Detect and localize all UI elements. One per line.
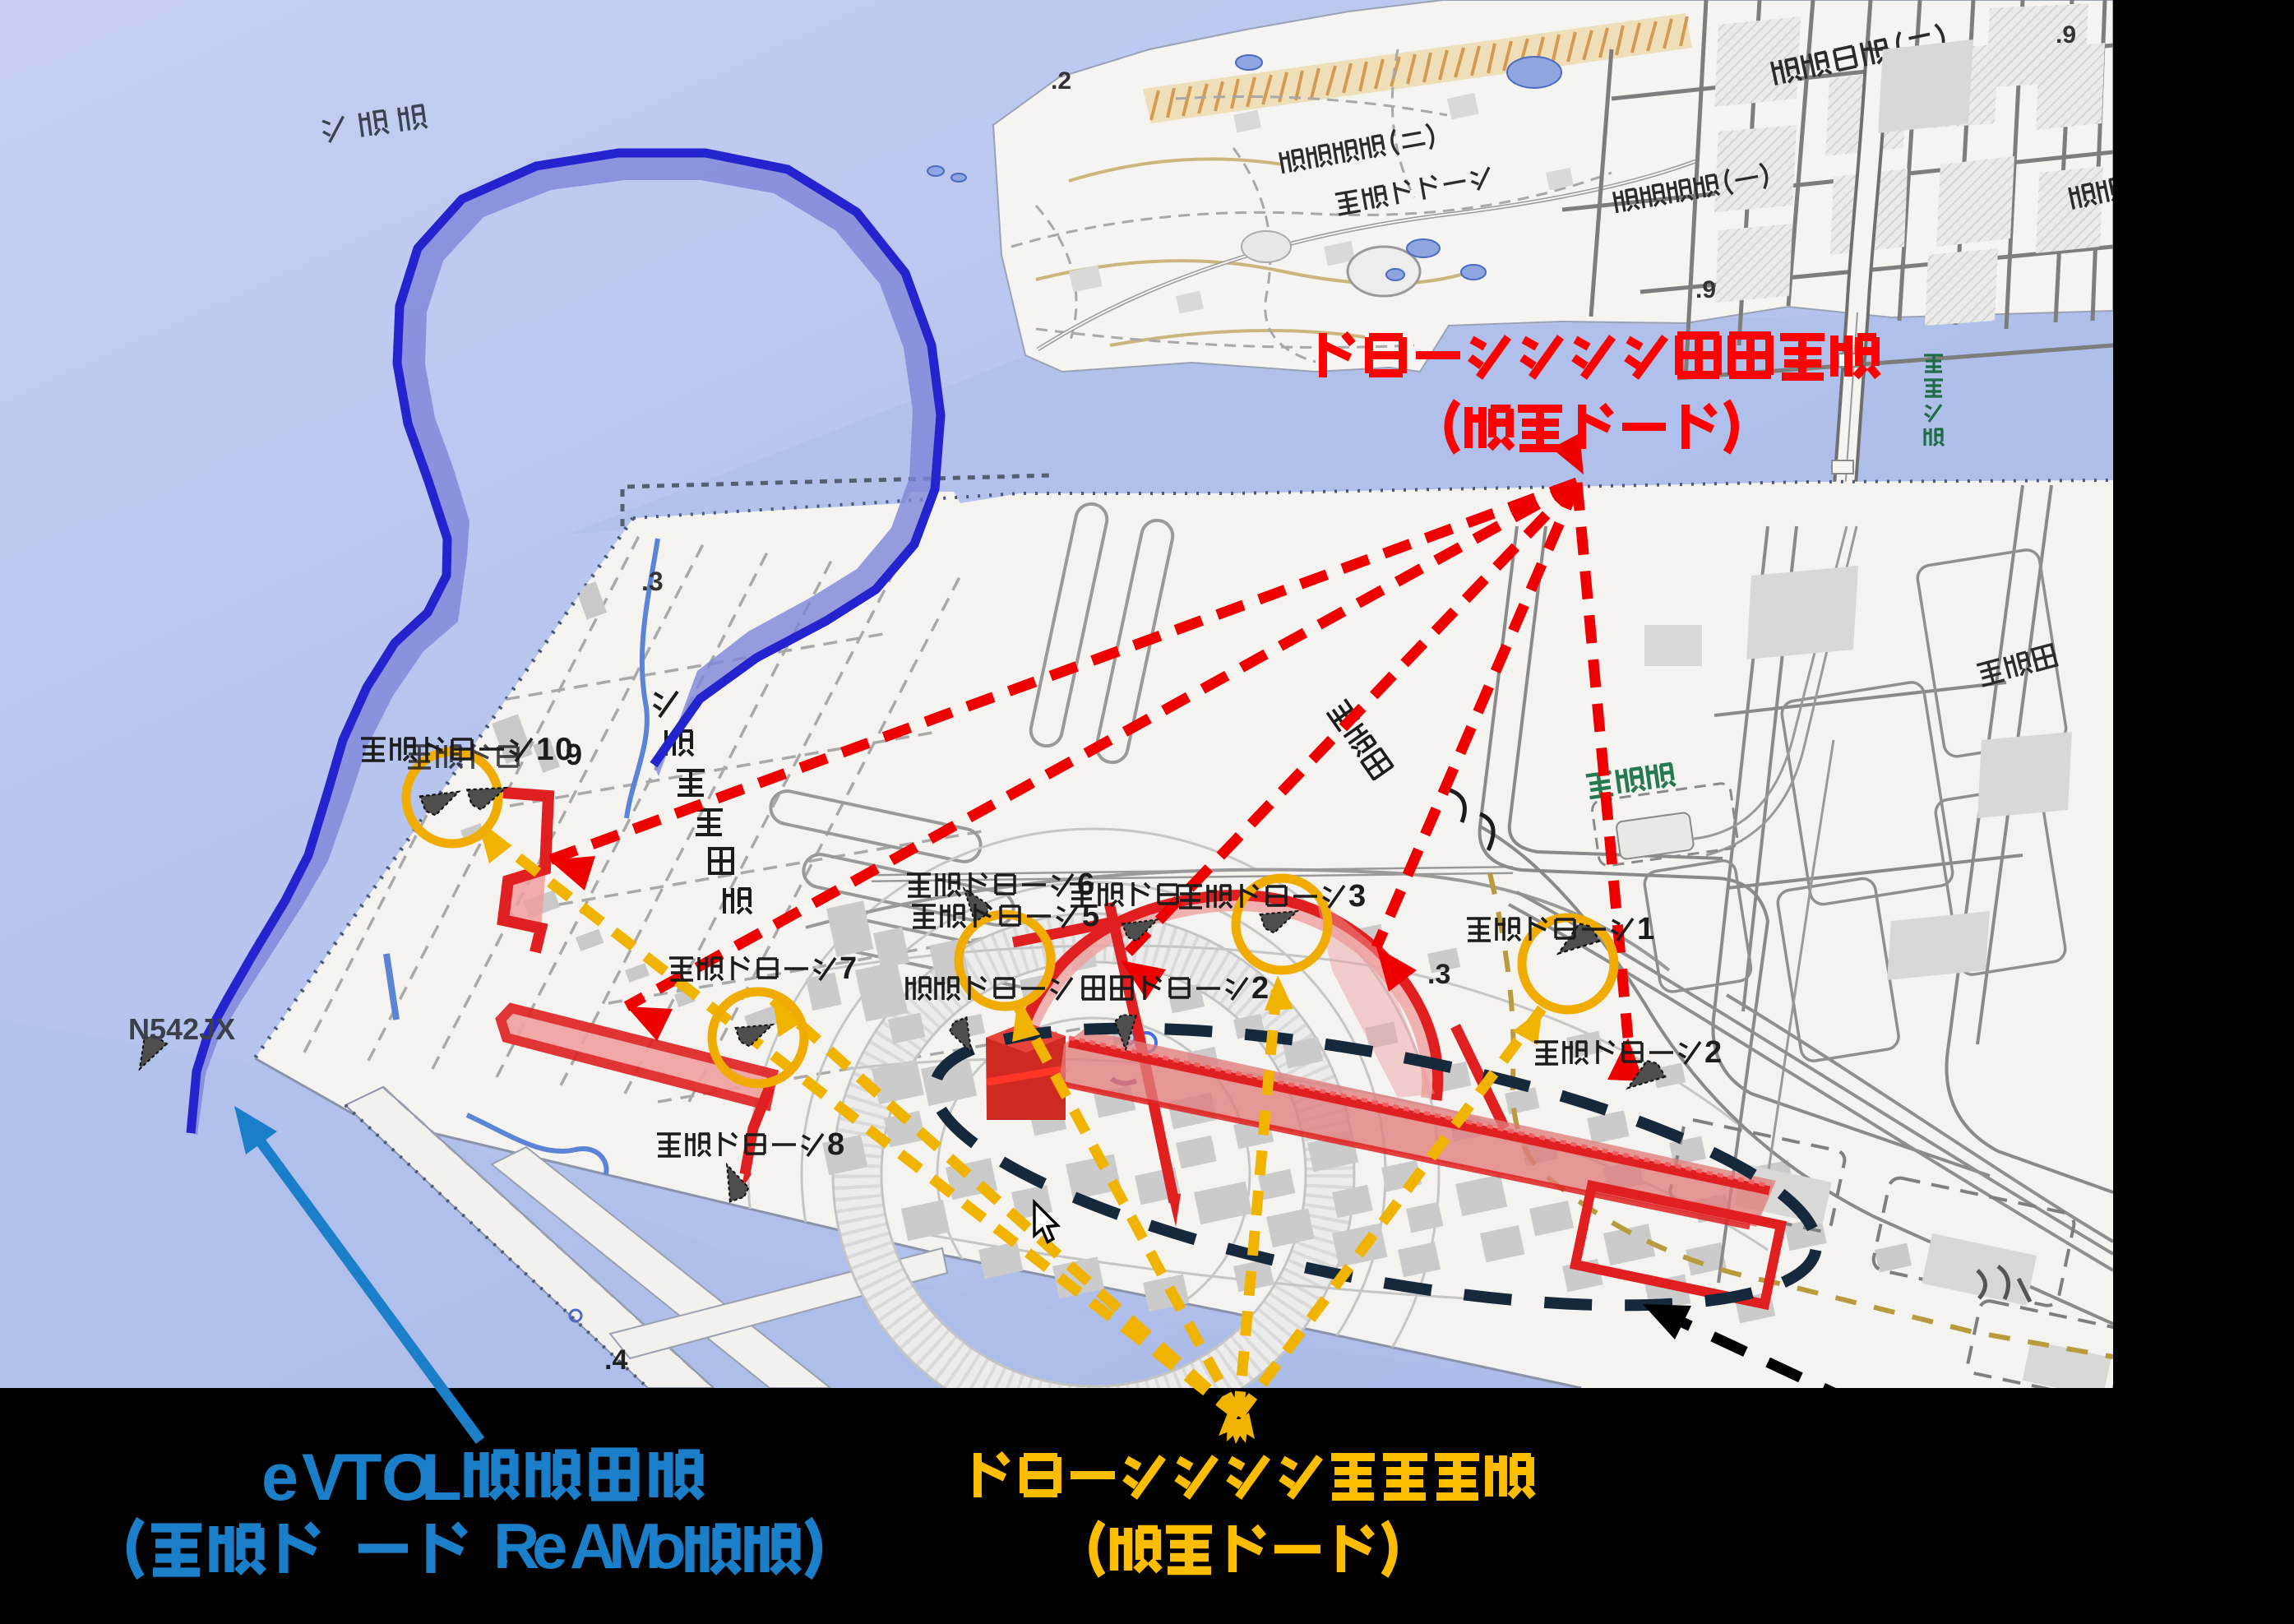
svg-text:L: L <box>421 1441 461 1515</box>
svg-text:.9: .9 <box>2056 21 2076 49</box>
svg-text:1: 1 <box>1637 912 1654 946</box>
svg-text:e: e <box>261 1441 298 1515</box>
svg-text:3: 3 <box>1348 879 1366 914</box>
svg-text:2: 2 <box>1704 1035 1722 1070</box>
svg-text:e: e <box>532 1510 567 1582</box>
svg-text:1: 1 <box>536 732 554 767</box>
svg-text:5: 5 <box>1082 899 1099 933</box>
svg-text:V: V <box>302 1441 346 1515</box>
svg-text:T: T <box>341 1441 382 1515</box>
svg-text:.2: .2 <box>1051 67 1071 95</box>
svg-text:2: 2 <box>1251 971 1269 1006</box>
svg-text:o: o <box>647 1510 687 1582</box>
svg-text:.9: .9 <box>1695 276 1716 303</box>
svg-text:.3: .3 <box>1427 959 1450 990</box>
svg-text:.3: .3 <box>641 567 664 596</box>
svg-text:N542JX: N542JX <box>128 1012 235 1046</box>
svg-text:.4: .4 <box>604 1344 627 1376</box>
svg-text:7: 7 <box>839 951 857 986</box>
svg-text:8: 8 <box>827 1127 844 1162</box>
svg-text:9: 9 <box>566 738 582 771</box>
